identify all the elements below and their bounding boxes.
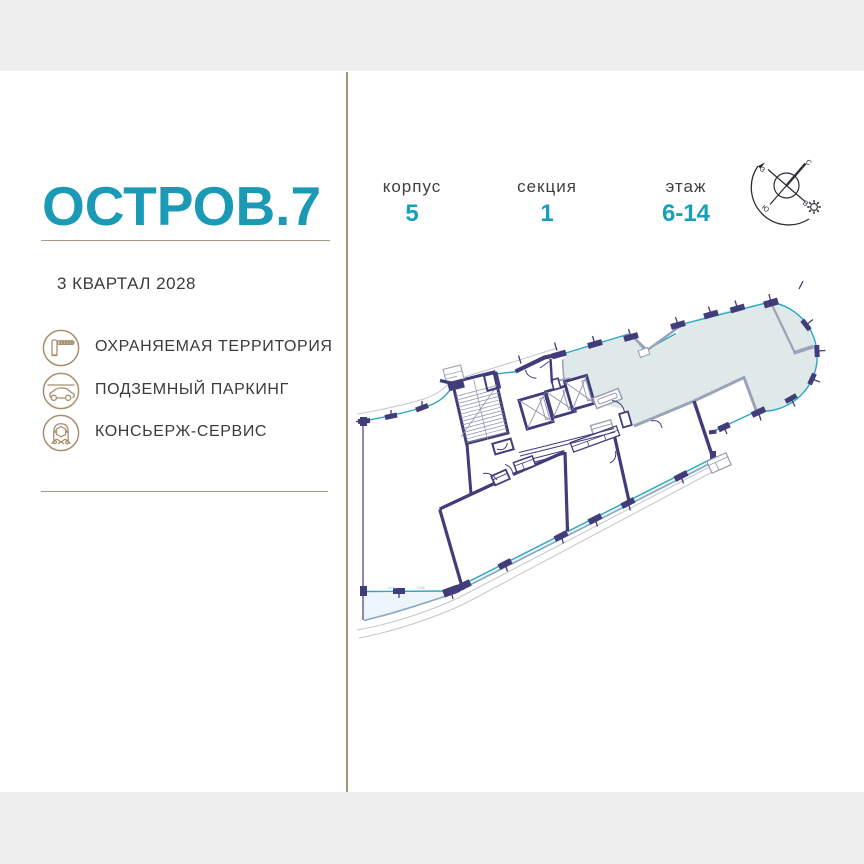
svg-text:С: С xyxy=(804,157,814,167)
svg-text:7136: 7136 xyxy=(416,585,426,590)
svg-text:4011: 4011 xyxy=(388,585,397,590)
